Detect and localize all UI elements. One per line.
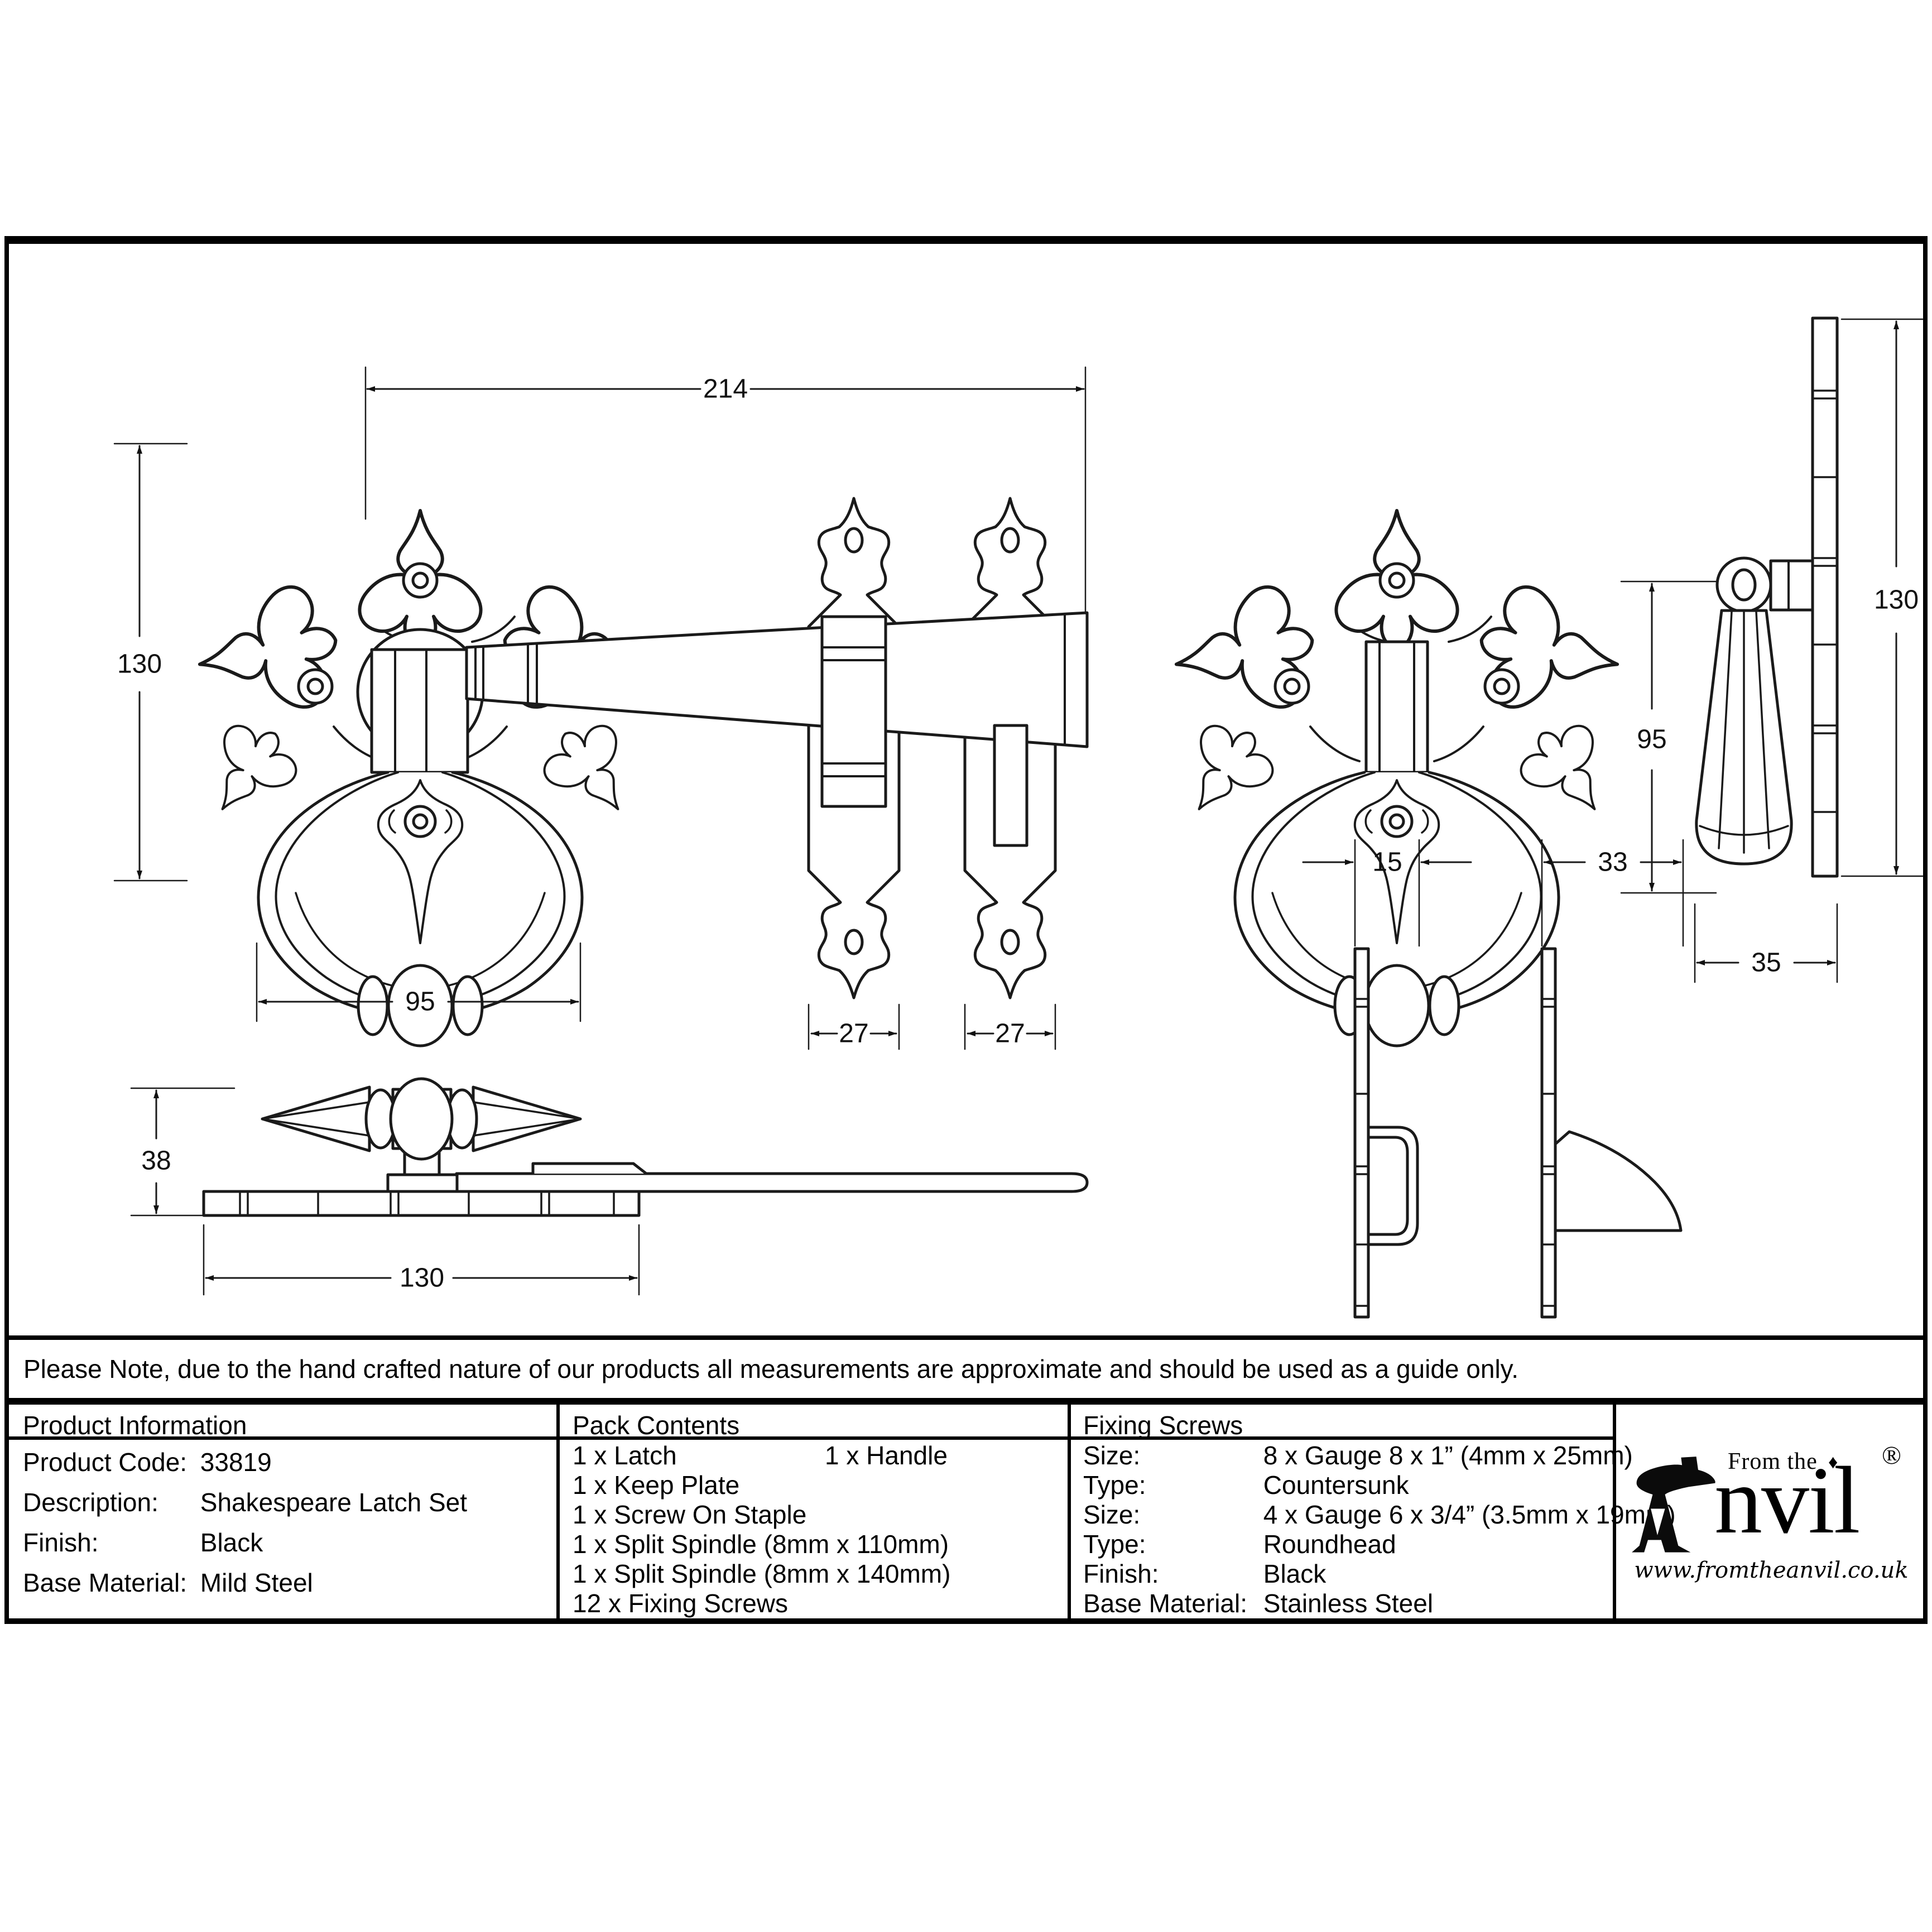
screw-type-value-2: Roundhead [1263,1530,1396,1559]
screw-finish-label: Finish: [1083,1559,1256,1589]
dim-front-width: 214 [703,374,748,404]
fixing-row: Base Material: Stainless Steel [1083,1588,1433,1618]
product-code-label: Product Code: [23,1447,193,1477]
latch-keeper-side [1555,1132,1681,1231]
fixing-row: Type: Countersunk [1083,1470,1409,1500]
product-info-row: Finish: Black [23,1527,263,1558]
brand-logo-cell: From the ♦ nvil ® www.fromtheanvil.co.uk [1616,1405,1923,1618]
keeper-slot [994,725,1027,845]
dim-plate-length: 130 [400,1263,444,1293]
logo-url: www.fromtheanvil.co.uk [1632,1558,1911,1583]
screw-on-staple-side [1368,1127,1417,1244]
product-info-row: Description: Shakespeare Latch Set [23,1487,467,1517]
description-value: Shakespeare Latch Set [200,1488,467,1517]
product-information-header: Product Information [23,1410,247,1440]
base-material-value: Mild Steel [200,1568,313,1597]
dim-handle-drop: 95 [1637,725,1666,754]
base-material-label: Base Material: [23,1568,193,1598]
turn-knob-side [262,1079,580,1159]
note-row: Please Note, due to the hand crafted nat… [9,1335,1923,1398]
screw-size-value-2: 4 x Gauge 6 x 3/4” (3.5mm x 19mm) [1263,1500,1676,1529]
pack-item: 1 x Keep Plate [573,1470,739,1500]
drawing-area: 214 130 95 27 27 [9,244,1923,1335]
sheet-frame: 214 130 95 27 27 [4,236,1928,1624]
dim-handle-depth: 35 [1751,948,1781,978]
screw-finish-value: Black [1263,1559,1326,1588]
table-header-underline [9,1436,1613,1440]
drop-handle-side [1696,611,1791,864]
screw-base-material-label: Base Material: [1083,1588,1256,1618]
screw-size-value: 8 x Gauge 8 x 1” (4mm x 25mm) [1263,1441,1633,1470]
finish-value: Black [200,1528,263,1557]
description-label: Description: [23,1487,193,1517]
screw-size-label: Size: [1083,1440,1256,1470]
screw-type-label: Type: [1083,1470,1256,1500]
dim-plate-height: 130 [117,650,162,679]
side-view-latch [204,1079,1087,1215]
front-view-handle [1166,511,1628,1046]
pack-item: 1 x Latch [573,1440,677,1470]
ring-handle-right [1235,772,1559,1046]
fixing-row: Size: 4 x Gauge 6 x 3/4” (3.5mm x 19mm) [1083,1500,1676,1530]
spec-table: Product Information Pack Contents Fixing… [9,1398,1923,1618]
from-the-anvil-logo: From the ♦ nvil ® www.fromtheanvil.co.uk [1632,1448,1911,1588]
note-text: Please Note, due to the hand crafted nat… [9,1354,1518,1384]
dim-staple-depth: 15 [1372,848,1402,877]
spindle-hub [372,650,468,772]
dim-side-height: 38 [141,1146,171,1176]
handle-plate-side [1813,318,1837,876]
pack-contents-header: Pack Contents [573,1410,739,1440]
screw-size-label-2: Size: [1083,1500,1256,1530]
anvil-icon [1632,1454,1727,1554]
latch-guide [822,617,886,806]
fixing-screws-header: Fixing Screws [1083,1410,1243,1440]
fixing-row: Type: Roundhead [1083,1529,1396,1559]
pack-item: 1 x Split Spindle (8mm x 110mm) [573,1529,949,1559]
handle-strap [1366,642,1428,772]
product-info-row: Base Material: Mild Steel [23,1568,313,1598]
screw-base-material-value: Stainless Steel [1263,1589,1433,1618]
front-view-latch-set [189,498,1087,1046]
side-view-handle [1696,318,1837,876]
registered-trademark-icon: ® [1882,1440,1901,1470]
fixing-row: Size: 8 x Gauge 8 x 1” (4mm x 25mm) [1083,1440,1633,1470]
logo-anvil-text: nvil [1714,1453,1859,1549]
finish-label: Finish: [23,1527,193,1558]
pack-item: 1 x Split Spindle (8mm x 140mm) [573,1559,950,1589]
backplate-side [204,1191,639,1215]
product-code-value: 33819 [200,1448,272,1477]
screw-type-value: Countersunk [1263,1470,1409,1500]
pack-item: 1 x Screw On Staple [573,1500,806,1530]
keeper-plate-side [1542,949,1681,1317]
dim-keeper-depth: 33 [1598,848,1627,877]
dim-ring-width: 95 [405,987,435,1017]
pivot-arm [1771,561,1813,610]
product-info-row: Product Code: 33819 [23,1447,272,1477]
pack-item: 12 x Fixing Screws [573,1588,788,1618]
latch-bar-side [456,1164,1087,1191]
dim-keep-width-a: 27 [839,1019,868,1049]
dim-keep-width-b: 27 [995,1019,1025,1049]
fixing-row: Finish: Black [1083,1559,1326,1589]
technical-drawing: 214 130 95 27 27 [9,244,1923,1335]
dim-handle-plate-height: 130 [1874,585,1919,615]
pack-item: 1 x Handle [825,1440,948,1470]
screw-type-label-2: Type: [1083,1529,1256,1559]
